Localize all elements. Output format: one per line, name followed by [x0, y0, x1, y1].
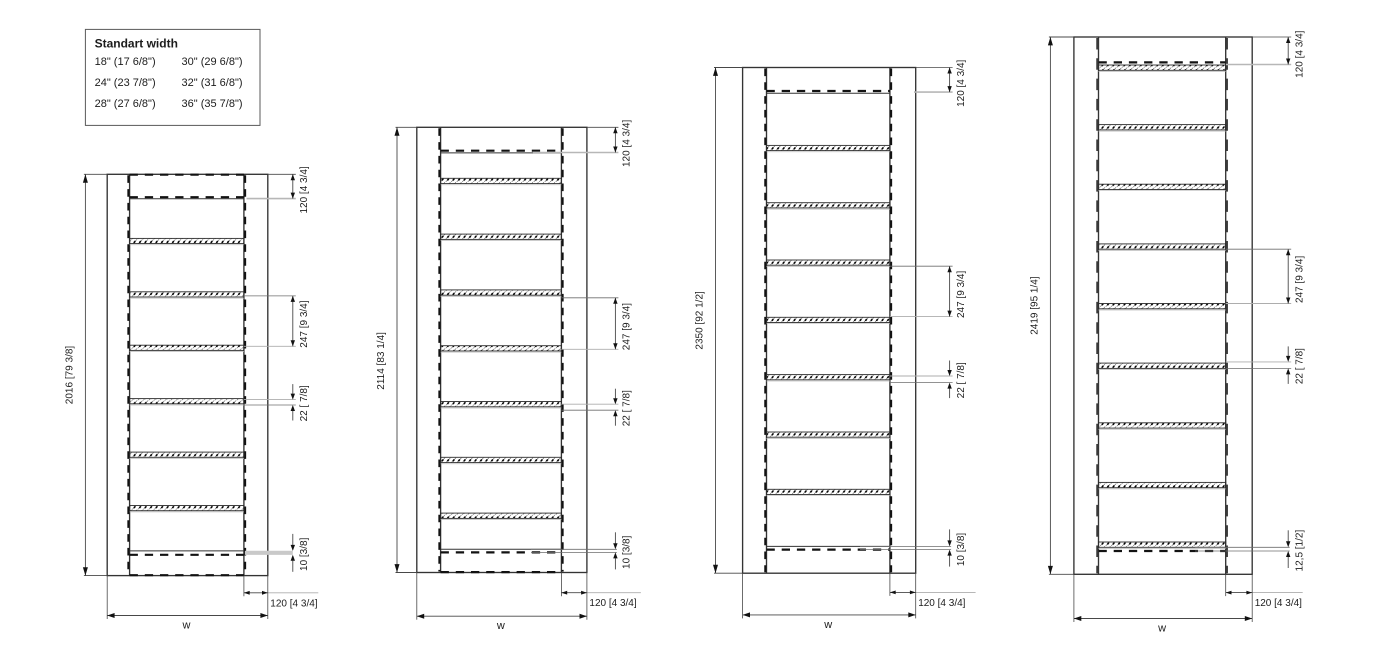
svg-text:10 [3/8]: 10 [3/8]: [622, 535, 633, 569]
svg-text:120 [4 3/4]: 120 [4 3/4]: [589, 598, 636, 609]
svg-text:18" (17 6/8"): 18" (17 6/8"): [95, 56, 156, 68]
svg-text:10 [3/8]: 10 [3/8]: [299, 537, 310, 571]
svg-text:30" (29 6/8"): 30" (29 6/8"): [182, 56, 243, 68]
svg-text:32" (31 6/8"): 32" (31 6/8"): [182, 77, 243, 89]
svg-text:w: w: [496, 620, 505, 632]
svg-text:120 [4 3/4]: 120 [4 3/4]: [622, 120, 633, 167]
svg-text:Standart width: Standart width: [95, 36, 178, 50]
svg-text:120 [4 3/4]: 120 [4 3/4]: [1295, 30, 1306, 77]
svg-text:247 [9 3/4]: 247 [9 3/4]: [956, 271, 967, 318]
svg-text:22 [ 7/8]: 22 [ 7/8]: [956, 362, 967, 398]
svg-text:120 [4 3/4]: 120 [4 3/4]: [1255, 598, 1302, 609]
svg-text:w: w: [182, 620, 191, 632]
svg-text:w: w: [823, 619, 832, 631]
svg-text:2114 [83 1/4]: 2114 [83 1/4]: [376, 332, 387, 390]
svg-text:28" (27 6/8"): 28" (27 6/8"): [95, 98, 156, 110]
svg-text:22 [ 7/8]: 22 [ 7/8]: [1295, 348, 1306, 384]
svg-text:120 [4 3/4]: 120 [4 3/4]: [956, 59, 967, 106]
svg-text:247 [9 3/4]: 247 [9 3/4]: [622, 303, 633, 350]
svg-text:w: w: [1157, 623, 1166, 635]
svg-text:22 [ 7/8]: 22 [ 7/8]: [622, 390, 633, 426]
svg-text:247 [9 3/4]: 247 [9 3/4]: [299, 300, 310, 347]
svg-text:2419 [95 1/4]: 2419 [95 1/4]: [1029, 276, 1040, 335]
svg-text:2350 [92 1/2]: 2350 [92 1/2]: [695, 291, 706, 350]
svg-text:120 [4 3/4]: 120 [4 3/4]: [918, 598, 965, 609]
svg-text:22 [ 7/8]: 22 [ 7/8]: [299, 385, 310, 421]
svg-text:12,5 [1/2]: 12,5 [1/2]: [1295, 530, 1306, 572]
svg-text:247 [9 3/4]: 247 [9 3/4]: [1295, 256, 1306, 303]
svg-text:10 [3/8]: 10 [3/8]: [956, 533, 967, 567]
svg-text:2016 [79 3/8]: 2016 [79 3/8]: [64, 346, 75, 405]
svg-text:120 [4 3/4]: 120 [4 3/4]: [270, 598, 317, 609]
svg-text:120 [4 3/4]: 120 [4 3/4]: [299, 166, 310, 213]
svg-text:36" (35 7/8"): 36" (35 7/8"): [182, 98, 243, 110]
svg-text:24" (23 7/8"): 24" (23 7/8"): [95, 77, 156, 89]
